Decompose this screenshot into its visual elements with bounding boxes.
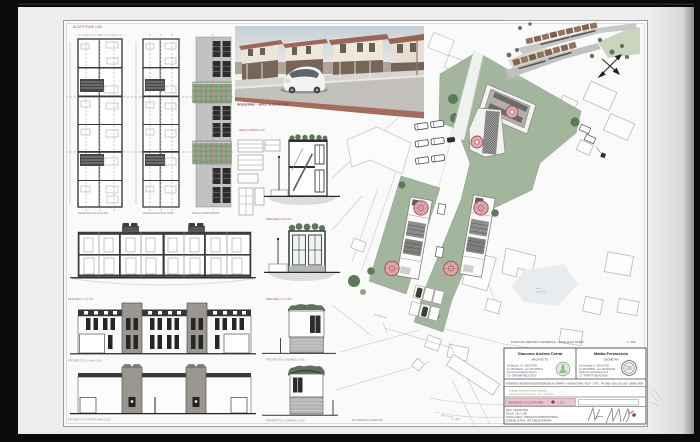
svg-text:1 : 500: 1 : 500 [627, 340, 636, 344]
svg-text:C.F. FRRMTT76B14G702W: C.F. FRRMTT76B14G702W [579, 375, 608, 377]
svg-text:SEZIONE A-A (1:50): SEZIONE A-A (1:50) [266, 217, 292, 221]
svg-text:COMUNE DI PISA - UFF. EDILIZ: COMUNE DI PISA - UFF. EDILIZIA PRIVATA [506, 420, 552, 423]
svg-text:ARCHITETTO: ARCHITETTO [532, 358, 549, 362]
svg-text:mattia.ferracciolo@geopec.it: mattia.ferracciolo@geopec.it [579, 371, 609, 374]
svg-text:verde priv.: verde priv. [536, 291, 547, 294]
svg-text:SCALA: 1:50 / 1:500: SCALA: 1:50 / 1:500 [506, 413, 528, 416]
svg-text:ABACO INFISSI 1:50: ABACO INFISSI 1:50 [239, 128, 265, 132]
svg-text:n. 214: n. 214 [557, 402, 564, 405]
svg-text:PERMESSO DI COSTRUIRE: PERMESSO DI COSTRUIRE [508, 401, 543, 405]
svg-text:tel. 050 540123 - cell. 333: tel. 050 540123 - cell. 333 6254871 [507, 368, 544, 371]
svg-text:SEZIONE V-V (1:50): SEZIONE V-V (1:50) [266, 297, 292, 301]
svg-text:area: area [536, 287, 541, 290]
svg-text:Via Mazzini, 24 - 56100 PIS: Via Mazzini, 24 - 56100 PISA [507, 365, 537, 368]
svg-text:Mattia Ferracciolo: Mattia Ferracciolo [594, 351, 629, 356]
svg-text:si allega: relazione tecnica: si allega: relazione tecnica illustrativ… [509, 390, 548, 393]
svg-text:DATA: GIUGNO 2011: DATA: GIUGNO 2011 [506, 409, 529, 412]
svg-text:PLANIVOLUMETRICO GENERALE -: PLANIVOLUMETRICO GENERALE - VIALE ALDO M… [511, 340, 585, 344]
svg-text:Pianta COMPLESSIVA: Pianta COMPLESSIVA [192, 211, 220, 215]
svg-text:1 : 200: 1 : 200 [452, 418, 460, 421]
svg-text:RENDERING - VIALE ALDO MORO: RENDERING - VIALE ALDO MORO [237, 103, 288, 107]
svg-text:Giacomo Andrea Cerrai: Giacomo Andrea Cerrai [518, 351, 563, 356]
svg-text:SEZIONE C-C (1:50): SEZIONE C-C (1:50) [68, 297, 93, 301]
svg-text:INTERVENTO DI NUOVA EDIFICAZIO: INTERVENTO DI NUOVA EDIFICAZIONE RESIDEN… [506, 382, 643, 385]
svg-text:GEOMETRA: GEOMETRA [604, 358, 619, 362]
svg-text:ALZATI PIANI 1:50: ALZATI PIANI 1:50 [73, 25, 102, 29]
svg-text:Pianta Piano Terra (1:50): Pianta Piano Terra (1:50) [78, 211, 108, 215]
svg-text:elaborati grafici di progetto: elaborati grafici di progetto - doc. fot… [509, 393, 555, 396]
svg-text:tel. 050 987654 - cell. 339: tel. 050 987654 - cell. 339 8741256 [579, 368, 616, 371]
svg-text:Via Garibaldi, 6 - 56100 PI: Via Garibaldi, 6 - 56100 PISA [579, 365, 609, 368]
svg-text:giacomo.cerrai@archiworld.it: giacomo.cerrai@archiworld.it [507, 371, 537, 374]
svg-text:PROSPETTO POSTERIORE (1:50): PROSPETTO POSTERIORE (1:50) [68, 418, 111, 422]
svg-text:PLANIMETRIA GENERALE: PLANIMETRIA GENERALE [352, 419, 383, 422]
svg-text:PROSPETTO LATERALE (1:50): PROSPETTO LATERALE (1:50) [266, 358, 305, 362]
svg-text:TAVOLA UNICA - PROGETTO ARCH: TAVOLA UNICA - PROGETTO ARCHITETTONICO [506, 416, 558, 419]
svg-text:PROSPETTO LATERALE (1:50): PROSPETTO LATERALE (1:50) [266, 419, 305, 423]
svg-text:PROSPETTO SU VIA (1:50): PROSPETTO SU VIA (1:50) [68, 359, 102, 363]
svg-text:C.F. CRRGMN74E22G702K: C.F. CRRGMN74E22G702K [507, 375, 536, 377]
svg-text:Pianta Piano Primo (1:50): Pianta Piano Primo (1:50) [143, 211, 174, 215]
